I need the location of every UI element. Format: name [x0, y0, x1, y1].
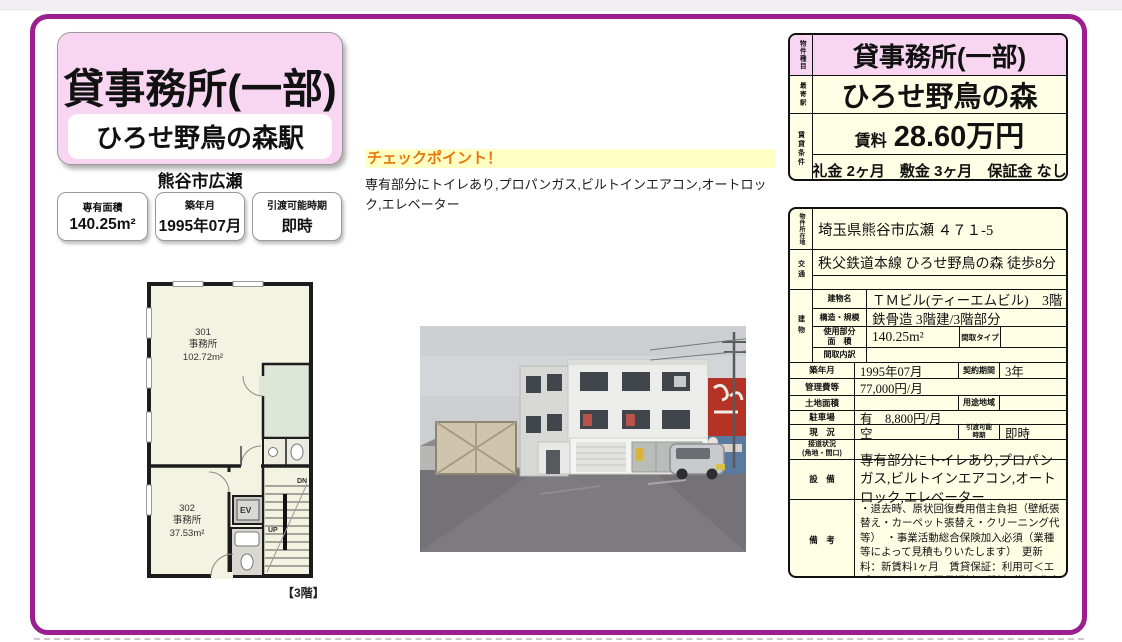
row-structure: 構造・規模 鉄骨造 3階建/3階部分 [813, 308, 1066, 326]
summary-terms-label-cell: 賃貸条件 [790, 114, 813, 181]
notes-value: ・退去時、原状回復費用借主負担（壁紙張替え・カーペット張替え・クリーニング代等）… [855, 500, 1066, 578]
floorplan-room-302-label: 302 事務所 37.53m² [142, 503, 232, 540]
flyer-page: 貸事務所(一部) ひろせ野鳥の森駅 熊谷市広瀬 専有面積 140.25m² 築年… [0, 0, 1122, 642]
stat-value: 1995年07月 [159, 214, 242, 236]
summary-type-label-cell: 物件種目 [790, 35, 813, 75]
rent-label: 賃料 [855, 127, 887, 151]
summary-type-value: 貸事務所(一部) [813, 35, 1066, 75]
access-label: 交通 [798, 260, 805, 280]
details-table: 物件所在地 埼玉県熊谷市広瀬 ４７１-5 交通 秩父鉄道本線 ひろせ野鳥の森 徒… [788, 207, 1068, 578]
checkpoint-title: チェックポイント！ [365, 149, 775, 168]
location-label: 物件所在地 [798, 213, 804, 246]
property-type-banner: 貸事務所(一部) ひろせ野鳥の森駅 [57, 32, 343, 165]
row-building-name: 建物名 ＴＭビル(ティーエムビル) 3階 [813, 290, 1066, 308]
summary-row-type: 物件種目 貸事務所(一部) [790, 35, 1066, 75]
row-layout-detail: 間取内訳 [813, 347, 1066, 362]
access-label-cell: 交通 [790, 250, 813, 289]
checkpoint-body: 専有部分にトイレあり,プロパンガス,ビルトインエアコン,オートロック,エレベータ… [365, 175, 775, 214]
rent-value: 28.60万円 [894, 113, 1025, 155]
contract-label: 契約期間 [959, 363, 1000, 378]
row-building-group: 建物 建物名 ＴＭビル(ティーエムビル) 3階 構造・規模 鉄骨造 3階建/3階… [790, 289, 1066, 362]
building-name-value: ＴＭビル(ティーエムビル) 3階 [867, 290, 1066, 308]
mgmt-fee-value: 77,000円/月 [855, 379, 1066, 395]
floorplan-ev-label: EV [240, 505, 252, 515]
summary-type-label: 物件種目 [798, 40, 805, 70]
row-mgmt-fee: 管理費等 77,000円/月 [790, 378, 1066, 395]
stat-label: 専有面積 [83, 199, 123, 214]
row-equipment: 設 備 専有部分にトイレあり,プロパンガス,ビルトインエアコン,オートロック,エ… [790, 459, 1066, 499]
summary-terms-label: 賃貸条件 [798, 131, 805, 167]
row-notes: 備 考 ・退去時、原状回復費用借主負担（壁紙張替え・カーペット張替え・クリーニン… [790, 499, 1066, 578]
row-access: 交通 秩父鉄道本線 ひろせ野鳥の森 徒歩8分 [790, 249, 1066, 289]
summary-station-label-cell: 最寄駅 [790, 76, 813, 113]
equipment-label: 設 備 [790, 460, 855, 499]
access-value-2 [813, 275, 1066, 289]
city-label: 熊谷市広瀬 [57, 167, 343, 192]
layout-type-label: 間取タイプ [960, 327, 1001, 347]
access-value: 秩父鉄道本線 ひろせ野鳥の森 徒歩8分 [813, 250, 1066, 275]
handover-value: 即時 [1000, 425, 1066, 439]
land-label: 土地面積 [790, 396, 855, 410]
used-area-value: 140.25m² [867, 327, 960, 347]
layout-detail-value [867, 348, 1066, 362]
handover-label: 引渡可能 時期 [959, 425, 1000, 439]
mgmt-fee-label: 管理費等 [790, 379, 855, 395]
parking-label: 駐車場 [790, 411, 855, 424]
floorplan-room-301-label: 301 事務所 102.72m² [158, 327, 248, 364]
summary-table: 物件種目 貸事務所(一部) 最寄駅 ひろせ野鳥の森 賃貸条件 賃料 28.60万… [788, 33, 1068, 181]
floorplan-dn-label: DN [297, 478, 307, 485]
property-type-title: 貸事務所(一部) [58, 55, 342, 115]
row-used-area: 使用部分 面 積 140.25m² 間取タイプ [813, 326, 1066, 347]
stat-value: 140.25m² [69, 216, 135, 234]
building-label-cell: 建物 [790, 290, 813, 362]
summary-rent-cell: 賃料 28.60万円 [813, 114, 1066, 154]
built-value: 1995年07月 [855, 363, 959, 378]
road-label: 接道状況 (角地・間口) [790, 440, 855, 459]
status-label: 現 況 [790, 425, 855, 439]
structure-value: 鉄骨造 3階建/3階部分 [867, 309, 1066, 326]
floorplan-floor-caption: 【3階】 [282, 584, 325, 601]
row-location: 物件所在地 埼玉県熊谷市広瀬 ４７１-5 [790, 209, 1066, 249]
layout-type-value [1001, 327, 1066, 347]
zoning-label: 用途地域 [959, 396, 1000, 410]
floorplan-up-label: UP [268, 527, 278, 534]
stat-value: 即時 [281, 214, 312, 236]
summary-row-station: 最寄駅 ひろせ野鳥の森 [790, 75, 1066, 113]
building-name-label: 建物名 [813, 290, 867, 308]
summary-row-terms: 賃貸条件 賃料 28.60万円 礼金 2ヶ月 敷金 3ヶ月 保証金 なし [790, 113, 1066, 181]
building-label: 建物 [798, 315, 805, 337]
top-gray-strip [0, 0, 1122, 11]
zoning-value [1000, 396, 1066, 410]
stat-handover: 引渡可能時期 即時 [252, 192, 342, 241]
parking-value: 有 8,800円/月 [855, 411, 1066, 424]
location-label-cell: 物件所在地 [790, 209, 813, 249]
station-name-box: ひろせ野鳥の森駅 [68, 114, 332, 159]
summary-station-label: 最寄駅 [798, 82, 805, 108]
structure-label: 構造・規模 [813, 309, 867, 326]
row-built: 築年月 1995年07月 契約期間 3年 [790, 362, 1066, 378]
stat-floor-area: 専有面積 140.25m² [57, 192, 148, 241]
stat-label: 築年月 [185, 197, 215, 212]
status-value: 空 [855, 425, 959, 439]
row-status: 現 況 空 引渡可能 時期 即時 [790, 424, 1066, 439]
equipment-value: 専有部分にトイレあり,プロパンガス,ビルトインエアコン,オートロック,エレベータ… [855, 460, 1066, 499]
summary-station-value: ひろせ野鳥の森 [813, 76, 1066, 113]
notes-label: 備 考 [790, 500, 855, 578]
layout-detail-label: 間取内訳 [813, 348, 867, 362]
checkpoint-section: チェックポイント！ 専有部分にトイレあり,プロパンガス,ビルトインエアコン,オー… [365, 149, 775, 214]
summary-fees-cell: 礼金 2ヶ月 敷金 3ヶ月 保証金 なし [813, 154, 1066, 181]
location-value: 埼玉県熊谷市広瀬 ４７１-5 [813, 209, 1066, 249]
stat-built-date: 築年月 1995年07月 [155, 192, 245, 241]
stat-label: 引渡可能時期 [267, 197, 327, 212]
built-label: 築年月 [790, 363, 855, 378]
contract-value: 3年 [1000, 363, 1066, 378]
page-cut-line [34, 638, 1084, 640]
used-area-label: 使用部分 面 積 [813, 327, 867, 347]
building-photo [420, 326, 746, 552]
